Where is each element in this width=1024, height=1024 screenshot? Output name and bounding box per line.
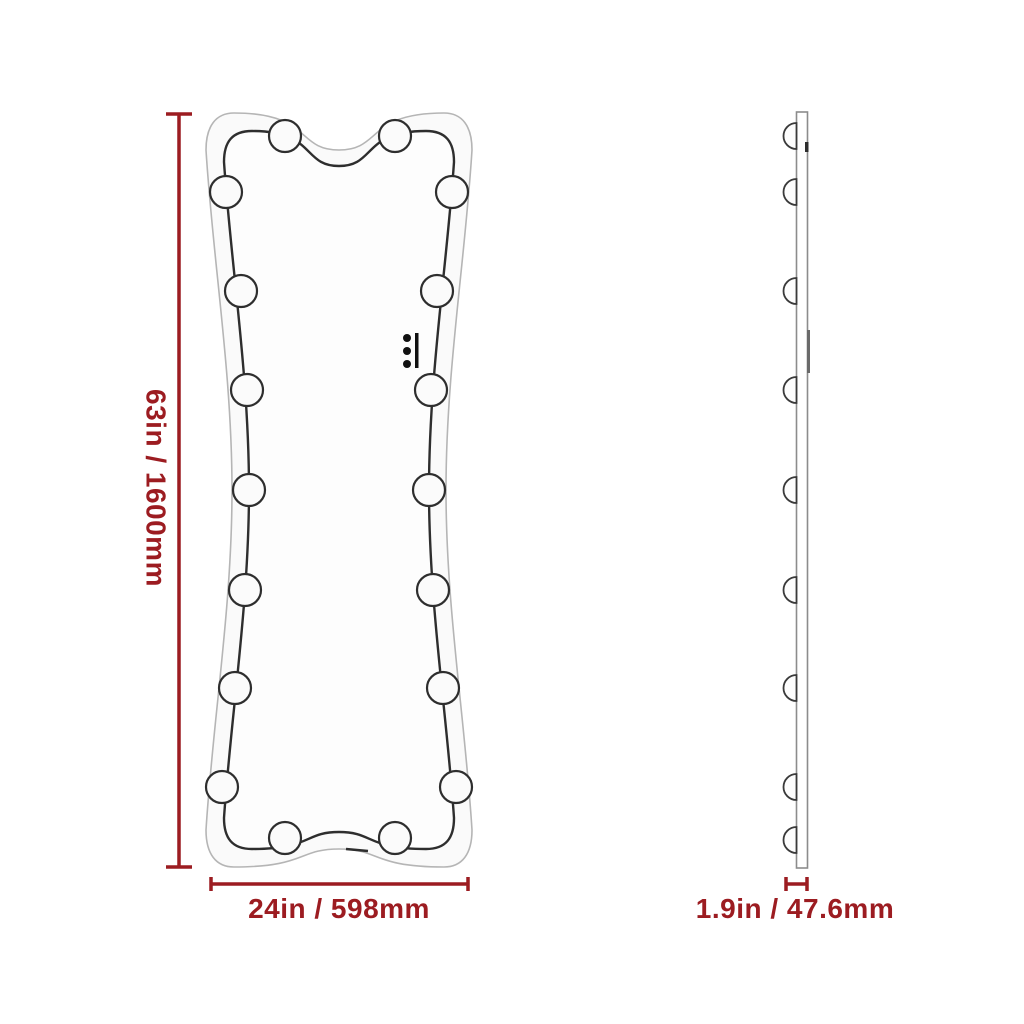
- side-bulb-icon: [784, 278, 797, 304]
- width-dimension: 24in / 598mm: [211, 877, 468, 924]
- control-dot-icon: [403, 360, 411, 368]
- depth-dimension-label: 1.9in / 47.6mm: [696, 893, 894, 924]
- side-bulb-icon: [784, 477, 797, 503]
- bulb-icon: [415, 374, 447, 406]
- diagram-svg: 63in / 1600mm 24in / 598mm 1.9in / 47.6m…: [0, 0, 1024, 1024]
- bulb-icon: [413, 474, 445, 506]
- bulb-icon: [219, 672, 251, 704]
- control-dot-icon: [403, 334, 411, 342]
- bulb-icon: [233, 474, 265, 506]
- side-bulbs: [784, 123, 797, 853]
- side-bulb-icon: [784, 123, 797, 149]
- side-bulb-icon: [784, 827, 797, 853]
- bulb-icon: [231, 374, 263, 406]
- control-buttons: [403, 333, 419, 368]
- bulb-icon: [225, 275, 257, 307]
- height-dimension-label: 63in / 1600mm: [141, 389, 172, 587]
- side-bulb-icon: [784, 774, 797, 800]
- width-dimension-label: 24in / 598mm: [248, 893, 430, 924]
- side-top-mark: [805, 142, 809, 152]
- mirror-front-view: [206, 113, 472, 867]
- bulb-icon: [229, 574, 261, 606]
- side-panel: [797, 112, 808, 868]
- bulb-icon: [269, 822, 301, 854]
- side-bulb-icon: [784, 377, 797, 403]
- bulb-icon: [206, 771, 238, 803]
- dimension-diagram: 63in / 1600mm 24in / 598mm 1.9in / 47.6m…: [0, 0, 1024, 1024]
- bulb-icon: [379, 822, 411, 854]
- bulb-icon: [427, 672, 459, 704]
- control-label-bar: [415, 333, 419, 368]
- width-dimension-line: [211, 877, 468, 891]
- bulb-icon: [421, 275, 453, 307]
- bulb-icon: [269, 120, 301, 152]
- bulb-icon: [436, 176, 468, 208]
- control-dot-icon: [403, 347, 411, 355]
- bulb-icon: [379, 120, 411, 152]
- height-dimension: 63in / 1600mm: [141, 114, 192, 867]
- bulb-icon: [417, 574, 449, 606]
- depth-dimension: 1.9in / 47.6mm: [696, 877, 894, 924]
- bulb-icon: [440, 771, 472, 803]
- mirror-side-view: [784, 112, 809, 868]
- bulb-icon: [210, 176, 242, 208]
- side-bulb-icon: [784, 179, 797, 205]
- side-bulb-icon: [784, 675, 797, 701]
- depth-dimension-line: [786, 877, 807, 891]
- side-bulb-icon: [784, 577, 797, 603]
